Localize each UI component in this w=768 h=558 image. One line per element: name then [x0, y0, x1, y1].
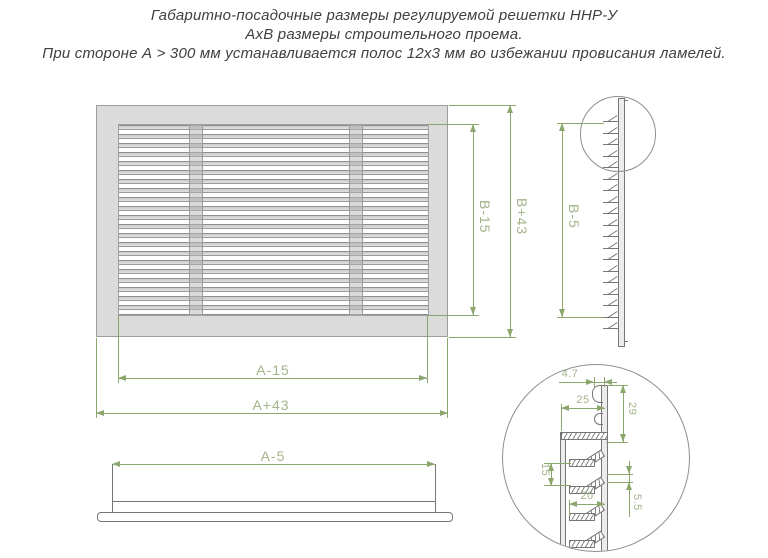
dimension-arrow — [96, 410, 104, 416]
extension-line — [557, 317, 604, 318]
dimension-arrow — [419, 375, 427, 381]
dimension-arrow — [470, 124, 476, 132]
dimension-line — [562, 123, 563, 317]
dimension-arrow — [569, 501, 577, 507]
dimension-arrow — [626, 466, 632, 474]
dimension-arrow — [597, 405, 605, 411]
detail-lamella-section — [569, 459, 595, 467]
side-lamella — [603, 248, 618, 260]
side-lamella — [603, 271, 618, 283]
dimension-arrow — [427, 461, 435, 467]
dim-label-lamella-pitch: 15 — [539, 463, 551, 476]
detail-lamella-section — [561, 432, 608, 440]
dimension-arrow — [118, 375, 126, 381]
side-lamella — [603, 179, 618, 191]
dimension-line — [473, 124, 474, 315]
dimension-line — [510, 105, 511, 337]
bottom-body-edge — [435, 464, 436, 513]
dimension-arrow — [112, 461, 120, 467]
grille-lamella-panel — [118, 124, 429, 316]
side-lamella — [603, 306, 618, 318]
detail-lamella-section — [569, 540, 595, 548]
dimension-line — [112, 464, 435, 465]
side-lamella — [603, 225, 618, 237]
extension-line — [594, 377, 595, 387]
side-profile-bottom-tab — [624, 341, 628, 342]
title-line-1: Габаритно-посадочные размеры регулируемо… — [0, 6, 768, 25]
dimension-arrow — [620, 434, 626, 442]
detail-section-view: 4.7 25 29 15 20 — [502, 364, 690, 552]
side-lamella — [603, 260, 618, 272]
dimension-arrow — [597, 501, 605, 507]
detail-clip-hook — [594, 413, 603, 425]
extension-line — [449, 105, 516, 106]
side-lamella — [603, 202, 618, 214]
side-lamella — [603, 214, 618, 226]
dimension-arrow — [620, 385, 626, 393]
dim-label-bottom-width: A-5 — [233, 448, 313, 464]
bottom-body-face-line — [112, 501, 436, 502]
side-lamella — [603, 294, 618, 306]
dimension-line — [118, 378, 427, 379]
dimension-arrow — [559, 123, 565, 131]
extension-line — [118, 316, 119, 383]
detail-lamella-section — [569, 513, 595, 521]
extension-line — [447, 338, 448, 418]
dimension-arrow — [626, 482, 632, 490]
detail-support-strip — [560, 432, 566, 552]
dim-label-lamella-gap: 5.5 — [631, 494, 643, 511]
side-lamella — [603, 317, 618, 329]
side-lamella — [603, 237, 618, 249]
title-line-3: При стороне А > 300 мм устанавливается п… — [0, 44, 768, 63]
side-lamella — [603, 283, 618, 295]
dim-label-outer-width: A+43 — [231, 397, 311, 413]
dimension-arrow — [548, 478, 554, 486]
side-lamella — [603, 191, 618, 203]
dim-label-top-offset: 29 — [626, 402, 638, 415]
dim-label-outer-height: B+43 — [514, 198, 530, 235]
dimension-arrow — [507, 329, 513, 337]
title-block: Габаритно-посадочные размеры регулируемо… — [0, 6, 768, 63]
lamella-support-strip — [349, 125, 363, 315]
dimension-arrow — [507, 105, 513, 113]
extension-line — [429, 315, 479, 316]
title-line-2: АхВ размеры строительного проема. — [0, 25, 768, 44]
extension-line — [606, 442, 628, 443]
dimension-arrow — [559, 309, 565, 317]
dimension-line — [96, 413, 448, 414]
lamella-support-strip — [189, 125, 203, 315]
dim-label-side-height: B-5 — [566, 204, 582, 229]
drawing-canvas: Габаритно-посадочные размеры регулируемо… — [0, 0, 768, 558]
dimension-arrow — [586, 379, 594, 385]
extension-line — [449, 337, 516, 338]
detail-callout-circle — [580, 96, 656, 172]
bottom-body-edge — [112, 464, 113, 513]
dimension-arrow — [561, 405, 569, 411]
dimension-arrow — [440, 410, 448, 416]
bottom-flange — [97, 512, 453, 522]
dim-label-inner-width: A-15 — [233, 362, 313, 378]
extension-line — [427, 316, 428, 383]
dim-label-inner-height: B-15 — [477, 200, 493, 234]
extension-line — [96, 338, 97, 418]
dimension-arrow — [470, 307, 476, 315]
dim-label-hook-gap: 4.7 — [555, 368, 585, 380]
